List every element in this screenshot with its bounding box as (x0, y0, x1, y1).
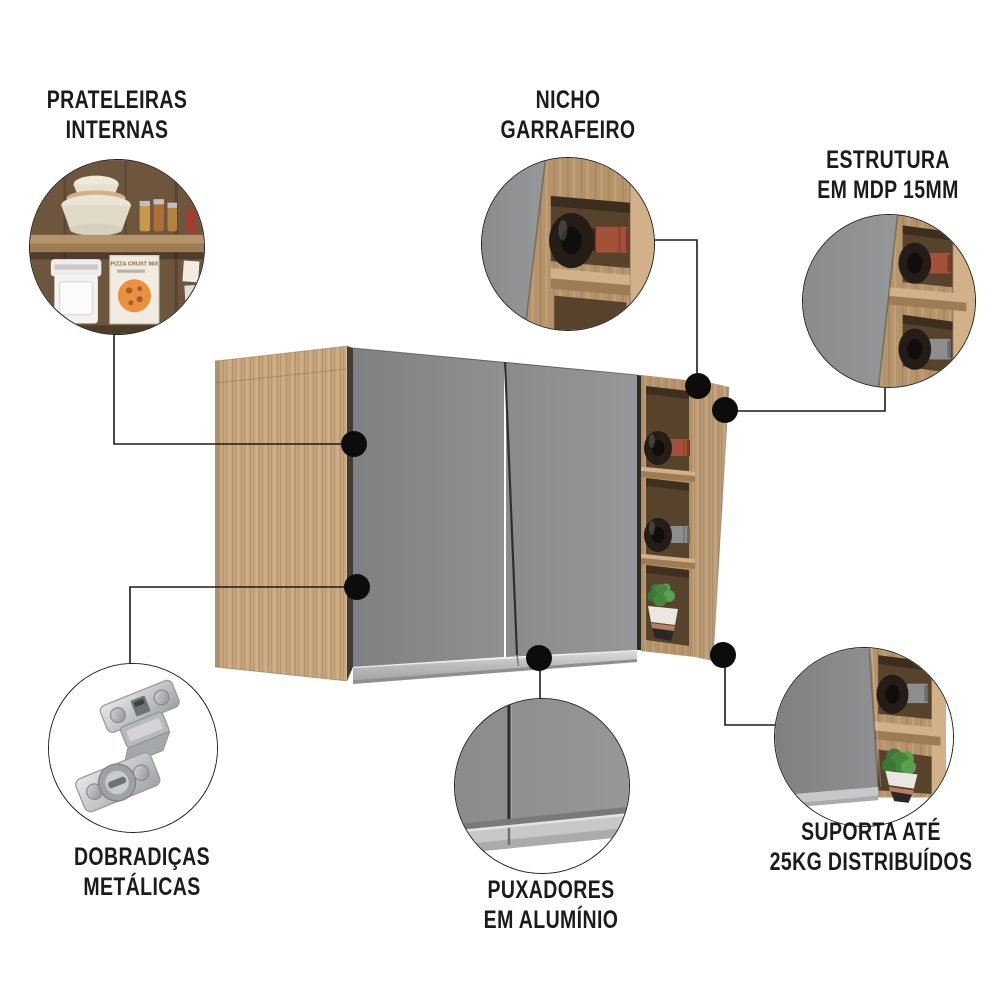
door-edge-shadow (347, 346, 353, 681)
connector-dot-estrutura (712, 397, 738, 423)
pizza-box-text: PIZZA CRUST MIX (110, 261, 158, 267)
internal-shelves-photo: PIZZA CRUST MIX (29, 159, 205, 335)
cabinet-right-door (506, 362, 637, 657)
weight-capacity-photo (774, 647, 954, 827)
cabinet-side-panel (215, 346, 347, 681)
connector-dot-suporta (710, 642, 736, 668)
wine-niche-photo (481, 157, 655, 331)
connector-line-estrutura (725, 386, 885, 411)
aluminum-handle-photo (454, 698, 630, 874)
connector-dot-puxadores (526, 645, 552, 671)
callout-label-suporta: SUPORTA ATÉ25KG DISTRIBUÍDOS (762, 817, 980, 877)
callout-label-nicho: NICHOGARRAFEIRO (459, 85, 677, 145)
cabinet-left-door (353, 348, 504, 667)
connector-dot-dobradicas (344, 574, 370, 600)
connector-dot-prateleiras (341, 431, 367, 457)
mdp-structure-photo (802, 214, 976, 388)
connector-dot-nicho (685, 373, 711, 399)
metal-hinge-photo (48, 663, 218, 833)
wine-rack-niche (637, 375, 695, 657)
callout-label-prateleiras: PRATELEIRASINTERNAS (8, 85, 226, 145)
connector-line-suporta (725, 655, 776, 725)
infographic-canvas: PIZZA CRUST MIX (0, 0, 1000, 1000)
callout-label-dobradicas: DOBRADIÇASMETÁLICAS (33, 842, 251, 902)
connector-line-nicho (653, 240, 697, 386)
callout-label-puxadores: PUXADORESEM ALUMÍNIO (442, 875, 660, 935)
pizza-box: PIZZA CRUST MIX (110, 256, 159, 324)
callout-label-estrutura: ESTRUTURAEM MDP 15MM (779, 145, 997, 205)
